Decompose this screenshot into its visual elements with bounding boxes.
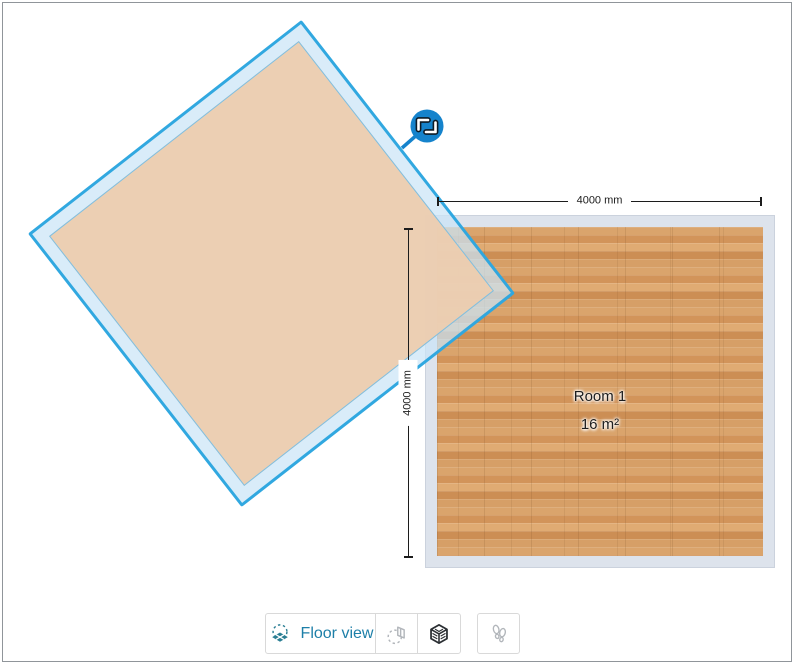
wall-view-icon xyxy=(385,623,409,645)
view-mode-toolbar: Floor view xyxy=(265,613,461,654)
floor-view-label: Floor view xyxy=(301,625,374,643)
dimension-height-label[interactable]: 4000 mm xyxy=(399,360,418,426)
3d-cube-icon xyxy=(427,623,451,645)
dimension-line xyxy=(439,201,568,203)
floorplan-canvas[interactable]: Room 1 16 m² 4000 mm 4000 mm xyxy=(0,0,795,670)
dimension-width: 4000 mm xyxy=(437,196,762,207)
room-area: 16 m² xyxy=(437,416,763,433)
floor-view-icon xyxy=(268,623,292,645)
dimension-line xyxy=(631,201,760,203)
walk-view-button[interactable] xyxy=(477,613,520,654)
footprints-icon xyxy=(486,622,512,646)
wall-view-button[interactable] xyxy=(375,613,418,654)
dimension-cap xyxy=(404,556,413,558)
dimension-width-label[interactable]: 4000 mm xyxy=(568,196,632,207)
rotate-handle[interactable] xyxy=(388,98,450,156)
room-1-label: Room 1 16 m² xyxy=(437,388,763,433)
room-name: Room 1 xyxy=(437,388,763,405)
floor-view-button[interactable]: Floor view xyxy=(265,613,376,654)
dimension-cap xyxy=(404,228,413,230)
3d-view-button[interactable] xyxy=(417,613,461,654)
dimension-cap xyxy=(760,197,762,206)
dimension-height: 4000 mm xyxy=(402,228,415,558)
